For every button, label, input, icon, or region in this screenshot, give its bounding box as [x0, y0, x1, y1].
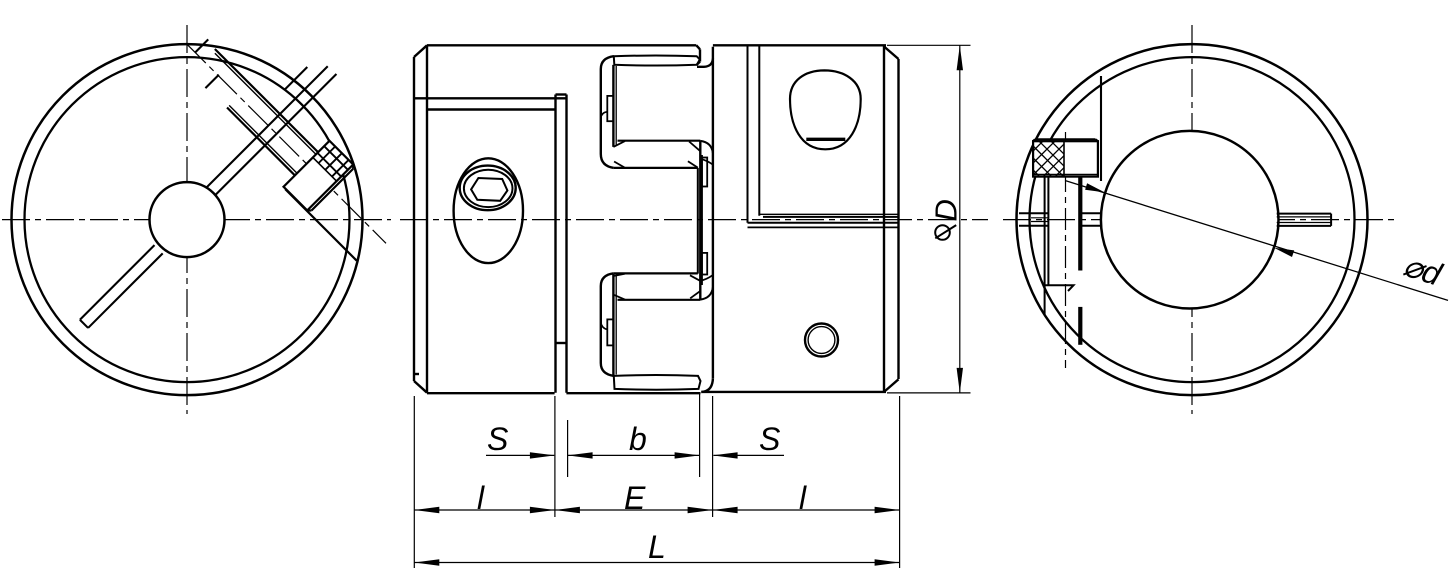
- svg-text:E: E: [624, 480, 646, 516]
- svg-text:S: S: [487, 421, 508, 457]
- svg-text:l: l: [799, 480, 807, 516]
- svg-text:S: S: [759, 421, 780, 457]
- svg-text:b: b: [629, 421, 647, 457]
- svg-text:l: l: [477, 480, 485, 516]
- svg-text:D: D: [929, 199, 964, 221]
- svg-text:L: L: [648, 529, 666, 565]
